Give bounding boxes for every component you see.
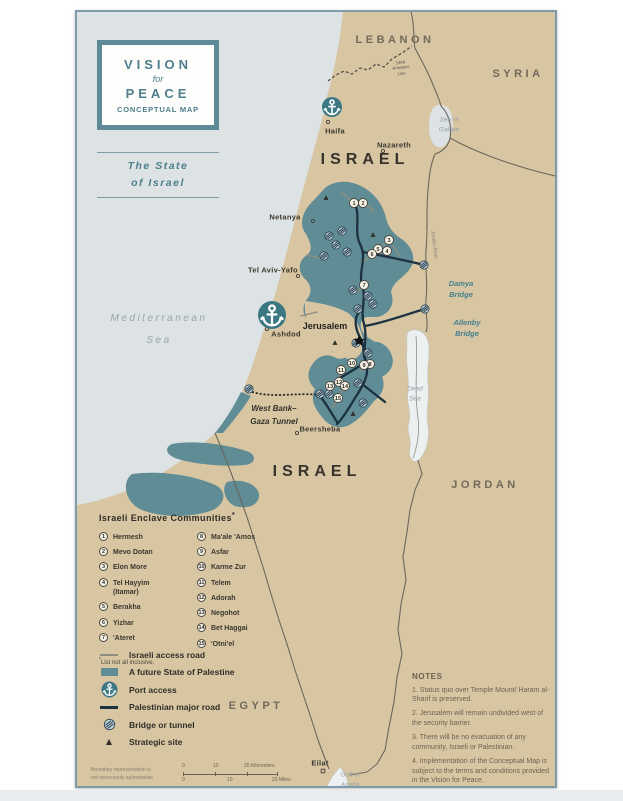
svg-text:11: 11 xyxy=(338,368,344,374)
subtitle-text: The Stateof Israel xyxy=(97,153,219,197)
enclave-marker-11: 11 xyxy=(337,366,346,375)
enclave-item-3: 3Elon More xyxy=(99,562,197,572)
enclave-column-2: 8Ma'ale 'Amos9Asfar10Karme Zur11Telem12A… xyxy=(197,532,255,654)
subtitle-box: The Stateof Israel xyxy=(97,152,219,198)
enclave-column-1: 1Hermesh2Mevo Dotan3Elon More4Tel Hayyim… xyxy=(99,532,197,654)
enclave-name: Negohot xyxy=(211,608,239,618)
enclave-marker-14: 14 xyxy=(341,382,350,391)
enclave-name: Mevo Dotan xyxy=(113,547,153,557)
legend-label: Palestinian major road xyxy=(129,702,220,712)
bridge-icon xyxy=(97,718,121,731)
road-dark-icon xyxy=(97,706,121,709)
svg-text:15: 15 xyxy=(335,396,341,402)
enclave-number: 4 xyxy=(99,578,108,587)
notes-items: 1. Status quo over Temple Mount/ Haram a… xyxy=(412,686,552,786)
note-item-1: 1. Status quo over Temple Mount/ Haram a… xyxy=(412,686,552,705)
enclave-marker-6: 6 xyxy=(368,250,377,259)
map-frame: 123456789101112131415 LEBANONSYRIAISRAEL… xyxy=(75,10,557,788)
svg-text:10: 10 xyxy=(349,361,355,367)
notes-box: NOTES 1. Status quo over Temple Mount/ H… xyxy=(412,672,552,786)
enclave-legend-title: Israeli Enclave Communities* xyxy=(99,510,339,523)
enclave-marker-2: 2 xyxy=(359,199,368,208)
enclave-item-5: 5Berakha xyxy=(99,602,197,612)
enclave-marker-13: 13 xyxy=(326,382,335,391)
enclave-number: 5 xyxy=(99,602,108,611)
enclave-item-11: 11Telem xyxy=(197,578,255,588)
enclave-item-1: 1Hermesh xyxy=(99,532,197,542)
svg-text:1: 1 xyxy=(352,201,355,207)
scale-bar: 01020 Kilometers 01020 Miles xyxy=(182,763,332,787)
enclave-number: 1 xyxy=(99,532,108,541)
enclave-number: 13 xyxy=(197,608,206,617)
enclave-legend: Israeli Enclave Communities* 1Hermesh2Me… xyxy=(99,510,339,666)
title-peace: PEACE xyxy=(126,86,191,101)
enclave-number: 14 xyxy=(197,623,206,632)
subtitle-line1: The State xyxy=(128,160,189,172)
enclave-item-13: 13Negohot xyxy=(197,608,255,618)
enclave-item-2: 2Mevo Dotan xyxy=(99,547,197,557)
legend-item-swatch: A future State of Palestine xyxy=(97,664,277,682)
legend-item-road-dark: Palestinian major road xyxy=(97,699,277,717)
enclave-number: 10 xyxy=(197,562,206,571)
footnote-asterisk: * xyxy=(232,510,235,519)
enclave-columns: 1Hermesh2Mevo Dotan3Elon More4Tel Hayyim… xyxy=(99,532,339,654)
title-box: VISION for PEACE CONCEPTUAL MAP xyxy=(97,40,219,130)
subtitle-line2: of Israel xyxy=(131,177,185,189)
boundary-disclaimer: Boundary representation is not necessari… xyxy=(91,766,175,782)
enclave-item-4: 4Tel Hayyim (Itamar) xyxy=(99,578,197,598)
strategic-icon xyxy=(97,739,121,745)
svg-text:14: 14 xyxy=(342,384,349,390)
svg-text:2: 2 xyxy=(361,201,364,207)
port-anchor-icon-Ashdod xyxy=(258,301,286,329)
enclave-item-12: 12Adorah xyxy=(197,593,255,603)
enclave-item-7: 7'Ateret xyxy=(99,633,197,643)
enclave-name: Tel Hayyim (Itamar) xyxy=(113,578,149,598)
enclave-number: 11 xyxy=(197,578,206,587)
enclave-number: 9 xyxy=(197,547,206,556)
enclave-marker-3: 3 xyxy=(385,236,394,245)
enclave-name: Ma'ale 'Amos xyxy=(211,532,255,542)
enclave-name: Asfar xyxy=(211,547,229,557)
enclave-item-10: 10Karme Zur xyxy=(197,562,255,572)
enclave-item-14: 14Bet Haggai xyxy=(197,623,255,633)
enclave-name: Elon More xyxy=(113,562,147,572)
note-item-2: 2. Jerusalem will remain undivided west … xyxy=(412,709,552,728)
page-footer-strip xyxy=(0,790,623,801)
subtitle-rule-bottom xyxy=(97,197,219,198)
title-vision: VISION xyxy=(124,57,192,72)
legend-label: Port access xyxy=(129,685,177,695)
legend-item-port: Port access xyxy=(97,681,277,699)
port-anchor-icon-Haifa xyxy=(322,97,342,117)
enclave-name: Bet Haggai xyxy=(211,623,248,633)
page: { "colors":{"land":"#d8c5a2","sea":"#dde… xyxy=(0,0,623,801)
legend-label: Israeli access road xyxy=(129,650,205,660)
enclave-marker-1: 1 xyxy=(350,199,359,208)
port-icon xyxy=(97,681,121,698)
swatch-icon xyxy=(97,668,121,676)
enclave-number: 3 xyxy=(99,562,108,571)
legend-label: A future State of Palestine xyxy=(129,667,234,677)
road-gray-icon xyxy=(97,654,121,656)
enclave-number: 8 xyxy=(197,532,206,541)
notes-title: NOTES xyxy=(412,672,552,681)
svg-text:3: 3 xyxy=(387,238,390,244)
legend-item-road-gray: Israeli access road xyxy=(97,646,277,664)
enclave-item-6: 6Yizhar xyxy=(99,618,197,628)
enclave-marker-9: 9 xyxy=(360,361,369,370)
enclave-number: 2 xyxy=(99,547,108,556)
map-legend: Israeli access roadA future State of Pal… xyxy=(97,646,277,751)
enclave-marker-10: 10 xyxy=(348,359,357,368)
enclave-name: Telem xyxy=(211,578,231,588)
legend-item-strategic: Strategic site xyxy=(97,734,277,752)
enclave-marker-15: 15 xyxy=(334,394,343,403)
enclave-name: Karme Zur xyxy=(211,562,246,572)
enclave-marker-7: 7 xyxy=(360,281,369,290)
note-item-4: 4. Implementation of the Conceptual Map … xyxy=(412,757,552,786)
enclave-name: Adorah xyxy=(211,593,236,603)
note-item-3: 3. There will be no evacuation of any co… xyxy=(412,733,552,752)
enclave-name: Hermesh xyxy=(113,532,143,542)
enclave-number: 12 xyxy=(197,593,206,602)
enclave-name: 'Ateret xyxy=(113,633,135,643)
title-for: for xyxy=(153,74,164,84)
svg-text:6: 6 xyxy=(370,252,373,258)
svg-text:9: 9 xyxy=(362,363,365,369)
enclave-item-9: 9Asfar xyxy=(197,547,255,557)
svg-text:13: 13 xyxy=(327,384,333,390)
enclave-number: 6 xyxy=(99,618,108,627)
scale-line xyxy=(183,772,278,775)
enclave-name: Berakha xyxy=(113,602,141,612)
svg-text:5: 5 xyxy=(376,247,379,253)
title-conceptual-map: CONCEPTUAL MAP xyxy=(117,105,199,114)
enclave-item-8: 8Ma'ale 'Amos xyxy=(197,532,255,542)
legend-item-bridge: Bridge or tunnel xyxy=(97,716,277,734)
svg-text:7: 7 xyxy=(362,283,365,289)
enclave-number: 7 xyxy=(99,633,108,642)
enclave-marker-4: 4 xyxy=(383,247,392,256)
legend-label: Bridge or tunnel xyxy=(129,720,195,730)
enclave-name: Yizhar xyxy=(113,618,134,628)
legend-label: Strategic site xyxy=(129,737,182,747)
